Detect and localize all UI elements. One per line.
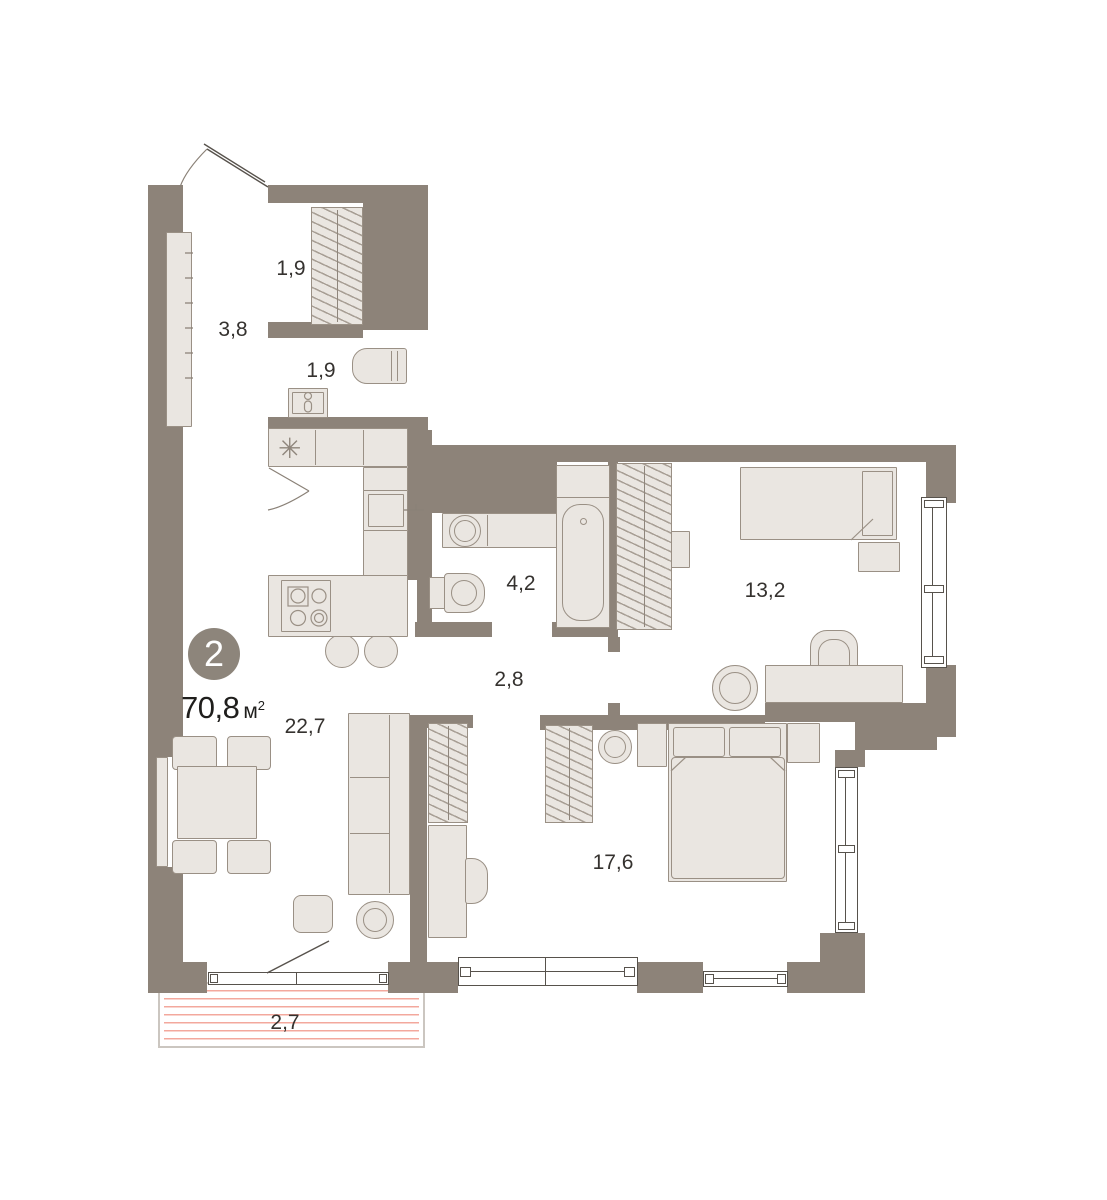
- wall: [835, 750, 865, 767]
- stool-inner: [363, 908, 387, 932]
- bar-stool: [325, 634, 359, 668]
- total-area-value: 70,8: [181, 690, 239, 725]
- wc-toilet-tank-line: [391, 351, 392, 381]
- wardrobe: [428, 723, 468, 823]
- balcony-door-divider: [296, 973, 297, 984]
- cabinet-divider: [363, 430, 364, 465]
- window-cap: [624, 967, 635, 977]
- room-label-bedroom-large: 17,6: [593, 851, 634, 875]
- balcony-door: [208, 972, 389, 985]
- window-mullion: [932, 501, 933, 664]
- room-label-bedroom-small: 13,2: [745, 579, 786, 603]
- window-cap: [379, 974, 387, 983]
- entry-door-leaf: [207, 149, 268, 187]
- total-area-unit: м2: [243, 700, 265, 723]
- dining-chair: [172, 736, 217, 770]
- wall: [557, 445, 926, 462]
- bed-pillow: [673, 727, 725, 757]
- window-cap: [924, 500, 944, 508]
- nightstand: [858, 542, 900, 572]
- floor-plan: ✳: [0, 0, 1107, 1200]
- desk-chair: [465, 858, 488, 904]
- room-label-wc: 1,9: [306, 359, 335, 383]
- kitchen-sink: [368, 494, 404, 527]
- wardrobe-shelf: [671, 531, 690, 568]
- corner-cabinet-line: [269, 468, 309, 491]
- wall: [148, 962, 207, 993]
- wall: [148, 867, 183, 963]
- wall: [787, 962, 865, 993]
- room-label-corridor: 2,8: [494, 668, 523, 692]
- nightstand: [787, 723, 820, 763]
- room-label-living: 22,7: [285, 715, 326, 739]
- toilet-tank: [429, 577, 445, 609]
- hall-shelf: [166, 232, 192, 427]
- wall: [608, 703, 620, 715]
- corner-cabinet-arc: [268, 491, 309, 510]
- window: [921, 497, 947, 668]
- bed-pillow: [729, 727, 781, 757]
- wall: [388, 962, 458, 993]
- dining-chair: [172, 840, 217, 874]
- wc-toilet: [352, 348, 407, 384]
- wall: [428, 445, 557, 513]
- rooms-count-badge: 2: [188, 628, 240, 680]
- wardrobe: [616, 463, 672, 630]
- bath-cabinet: [556, 465, 610, 498]
- balcony-door-leaf: [267, 941, 329, 973]
- dining-table: [177, 766, 257, 839]
- room-label-hallway: 3,8: [218, 318, 247, 342]
- window-cap: [705, 974, 714, 984]
- wall: [855, 718, 937, 750]
- desk: [765, 665, 903, 703]
- entry-door-swing-arc: [180, 149, 207, 187]
- wardrobe: [545, 725, 593, 823]
- window-cap: [460, 967, 471, 977]
- room-label-closet: 1,9: [276, 257, 305, 281]
- room-label-balcony: 2,7: [270, 1011, 299, 1035]
- bath-counter-divider: [487, 515, 488, 546]
- wall: [926, 665, 956, 737]
- entry-door-leaf: [204, 144, 265, 182]
- pouf: [293, 895, 333, 933]
- bed-pillow: [862, 471, 893, 536]
- window-cap: [838, 845, 855, 853]
- window-mullion: [545, 958, 546, 985]
- toilet-bowl-inner: [451, 580, 477, 606]
- stove: [281, 580, 331, 632]
- bed-blanket: [671, 757, 785, 879]
- radiator: [156, 757, 168, 867]
- wall: [415, 622, 492, 637]
- wall: [363, 203, 428, 330]
- bar-stool: [364, 634, 398, 668]
- fridge-icon: ✳: [278, 432, 301, 465]
- dining-chair: [227, 736, 271, 770]
- wall: [637, 962, 703, 993]
- wc-toilet-tank-line: [397, 351, 398, 381]
- wall: [268, 185, 428, 203]
- kitchen-cabinet: [363, 467, 408, 491]
- wall: [410, 715, 427, 963]
- window-cap: [777, 974, 786, 984]
- sofa-cushion-line: [350, 777, 389, 778]
- sofa-back-line: [389, 715, 390, 893]
- room-label-bathroom: 4,2: [506, 572, 535, 596]
- sofa: [348, 713, 410, 895]
- bath-sink-inner: [454, 520, 476, 542]
- cabinet-divider: [315, 430, 316, 465]
- window: [703, 971, 788, 987]
- sofa-cushion-line: [350, 833, 389, 834]
- stool-inner: [719, 672, 751, 704]
- nightstand: [637, 723, 667, 767]
- wall: [926, 445, 956, 503]
- closet-wardrobe: [311, 207, 363, 325]
- window-mullion: [463, 971, 633, 972]
- pouf-inner: [604, 736, 626, 758]
- wall: [820, 933, 865, 962]
- window-cap: [210, 974, 218, 983]
- washing-machine-inner: [292, 392, 324, 414]
- desk: [428, 825, 467, 938]
- desk-chair-inner: [818, 639, 850, 667]
- bathtub-drain: [580, 518, 587, 525]
- wall: [608, 637, 620, 652]
- window-cap: [924, 656, 944, 664]
- window-cap: [838, 770, 855, 778]
- window-cap: [924, 585, 944, 593]
- window-mullion: [708, 978, 783, 979]
- dining-chair: [227, 840, 271, 874]
- total-area: 70,8м2: [181, 690, 265, 726]
- kitchen-cabinet: [363, 530, 408, 576]
- window-cap: [838, 922, 855, 930]
